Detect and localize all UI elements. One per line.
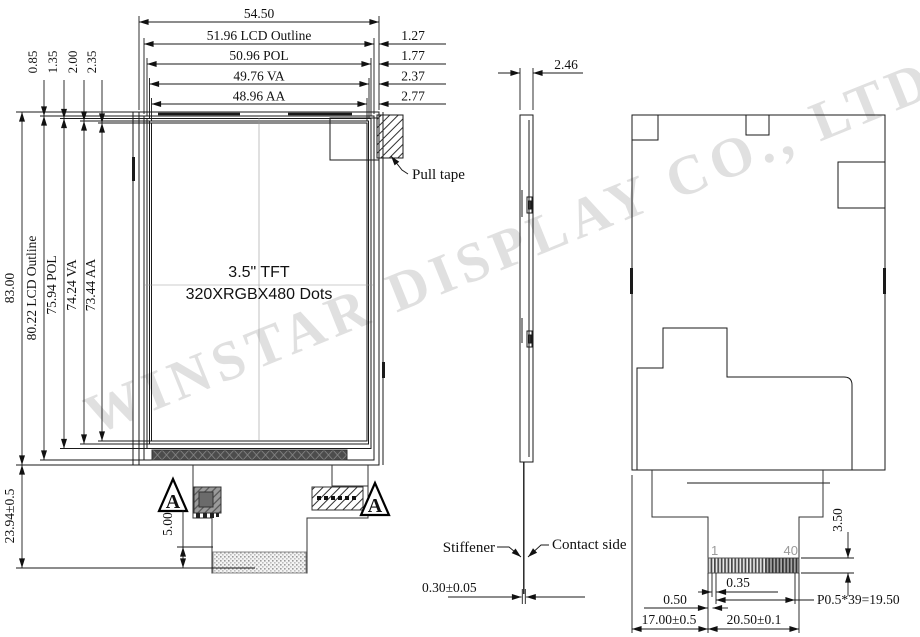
dim-aa-height: 73.44 AA xyxy=(83,259,98,312)
tape-area xyxy=(330,118,379,160)
dim-thickness: 2.46 xyxy=(554,57,578,72)
dim-fpc-tail: 5.00 xyxy=(160,512,175,536)
section-letter-left: A xyxy=(166,491,181,513)
contact-side-leader xyxy=(528,545,549,557)
side-view xyxy=(448,68,585,604)
fpc-connector xyxy=(213,552,306,573)
dim-top-gap-2: 1.35 xyxy=(45,51,60,74)
labels: 54.50 51.96 LCD Outline 50.96 POL 49.76 … xyxy=(2,6,900,627)
dim-va-height: 74.24 VA xyxy=(64,259,79,311)
dim-top-gap-1: 0.85 xyxy=(25,51,40,74)
dim-pin-offset: 0.50 xyxy=(663,592,687,607)
pull-tape-leader xyxy=(391,156,408,174)
corner-notch xyxy=(632,115,658,140)
dim-connector-width: 20.50±0.1 xyxy=(727,612,782,627)
drawing-canvas: 54.50 51.96 LCD Outline 50.96 POL 49.76 … xyxy=(0,0,920,637)
display-resolution: 320XRGBX480 Dots xyxy=(186,286,333,303)
rear-view xyxy=(632,115,886,573)
dim-pol-width: 50.96 POL xyxy=(229,48,288,63)
pin-40-label: 40 xyxy=(784,543,798,558)
contact-side-label: Contact side xyxy=(552,537,627,553)
section-letter-right: A xyxy=(368,495,383,517)
stiffener-leader xyxy=(497,547,521,557)
dim-edge-gap-4: 2.77 xyxy=(401,89,425,104)
rear-outline xyxy=(632,115,885,470)
display-title: 3.5" TFT xyxy=(228,264,290,281)
dim-top-gap-3: 2.00 xyxy=(65,51,80,74)
top-tab xyxy=(746,115,769,135)
dim-fpc-length: 23.94±0.5 xyxy=(2,488,17,543)
side-box xyxy=(838,162,885,208)
dim-edge-gap-1: 1.27 xyxy=(401,28,425,43)
dim-va-width: 49.76 VA xyxy=(233,69,285,84)
bonding-bar xyxy=(152,450,347,460)
lcd-module-drawing: WINSTAR DISPLAY CO., LTD. xyxy=(0,0,920,637)
side-profile xyxy=(520,115,533,462)
dim-fpc-thickness: 0.30±0.05 xyxy=(422,580,477,595)
dim-left-offset: 17.00±0.5 xyxy=(642,612,697,627)
rear-step-contour xyxy=(637,328,852,470)
dim-edge-gap-2: 1.77 xyxy=(401,48,425,63)
dim-total-width: 54.50 xyxy=(244,6,275,21)
dim-pol-height: 75.94 POL xyxy=(44,255,59,314)
dim-pitch: P0.5*39=19.50 xyxy=(817,592,900,607)
pin-1-label: 1 xyxy=(711,543,718,558)
dim-total-height: 83.00 xyxy=(2,273,17,304)
pull-tape xyxy=(377,115,403,158)
dim-aa-width: 48.96 AA xyxy=(233,89,286,104)
dim-lcd-outline-height: 80.22 LCD Outline xyxy=(24,236,39,341)
rear-dimensions xyxy=(632,475,854,633)
dim-pin-width: 0.35 xyxy=(726,575,750,590)
dim-lcd-outline-width: 51.96 LCD Outline xyxy=(207,28,312,43)
pull-tape-label: Pull tape xyxy=(412,167,465,183)
stiffener-label: Stiffener xyxy=(443,540,495,556)
dim-connector-height: 3.50 xyxy=(830,508,845,532)
dim-top-gap-4: 2.35 xyxy=(84,51,99,74)
dim-edge-gap-3: 2.37 xyxy=(401,69,425,84)
